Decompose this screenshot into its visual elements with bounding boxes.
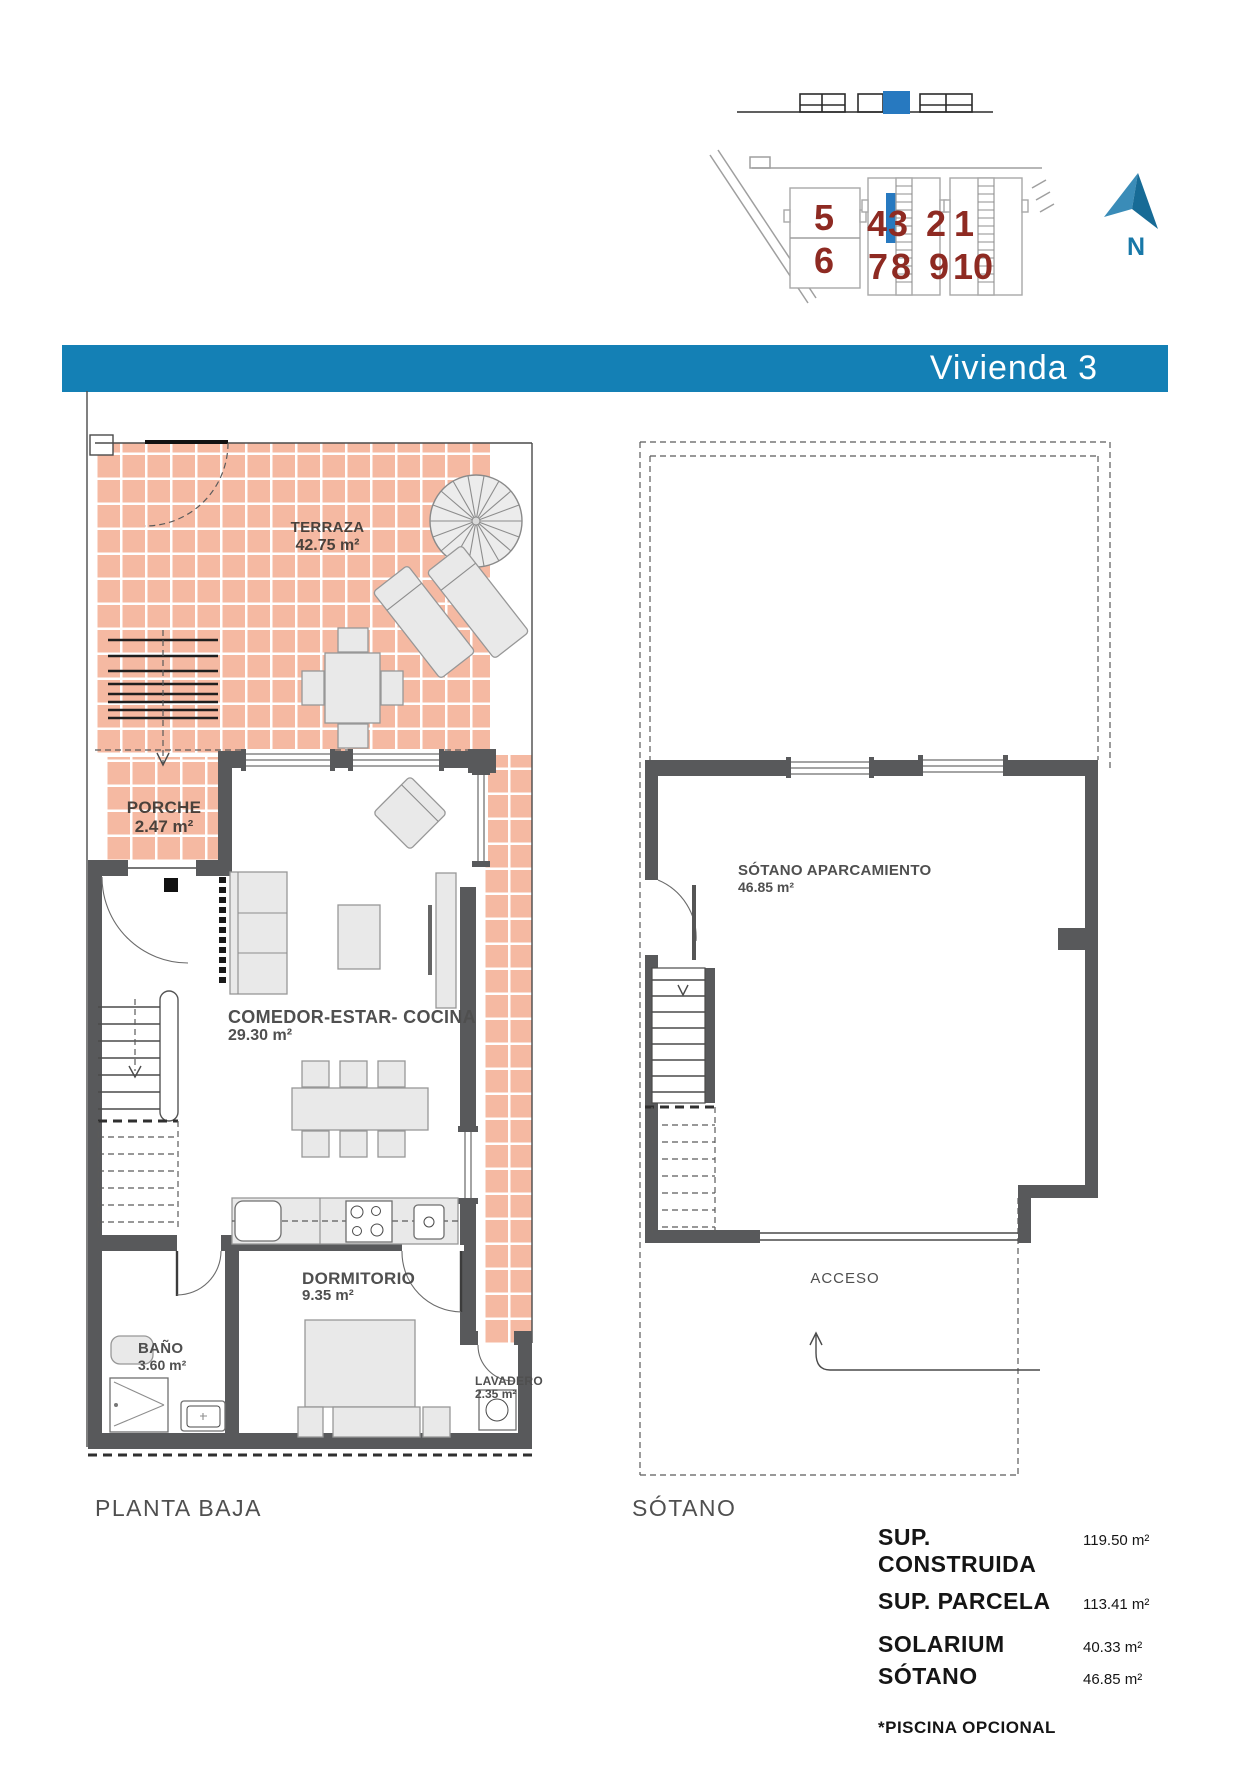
summary-label: SOLARIUM	[878, 1631, 1083, 1658]
sotano-drawing	[630, 385, 1115, 1485]
entry-door	[164, 878, 178, 892]
kitchen-counter	[232, 1198, 458, 1244]
garage-door-opening	[760, 1233, 1018, 1240]
summary-label: SUP. CONSTRUIDA	[878, 1524, 1083, 1578]
unit-number-4: 4	[867, 203, 887, 244]
caption-sotano: SÓTANO	[632, 1495, 736, 1522]
unit-number-8: 8	[891, 246, 911, 287]
interior-stairs	[98, 991, 178, 1229]
unit-number-10: 10	[953, 246, 993, 287]
page-title: Vivienda 3	[930, 349, 1098, 388]
unit-number-9: 9	[929, 246, 949, 287]
summary-row: SUP. CONSTRUIDA 119.50 m²	[878, 1524, 1208, 1578]
site-location-plan: 5 6 4 3 7 8 2 1 9 10	[640, 60, 1110, 310]
north-arrow: N	[1098, 165, 1168, 265]
spiral-stair	[430, 475, 522, 567]
sofa	[230, 872, 287, 994]
unit-number-7: 7	[868, 246, 888, 287]
unit-number-2: 2	[926, 203, 946, 244]
site-plan-drawing: 5 6 4 3 7 8 2 1 9 10	[640, 60, 1110, 310]
summary-row: SÓTANO 46.85 m²	[878, 1663, 1208, 1690]
summary-row: SOLARIUM 40.33 m²	[878, 1631, 1208, 1658]
parcel-boundary	[640, 442, 1110, 1475]
coffee-table	[338, 905, 380, 969]
bed	[298, 1320, 450, 1437]
unit-number-3: 3	[888, 203, 908, 244]
floorplan-sheet: 5 6 4 3 7 8 2 1 9 10 N Vivienda 3	[0, 0, 1241, 1778]
dining-table-set	[292, 1061, 428, 1157]
sink	[414, 1205, 444, 1239]
terrace-table-set	[302, 628, 403, 748]
room-label-lavadero: LAVADERO 2.35 m²	[475, 1375, 535, 1402]
summary-value: 40.33 m²	[1083, 1639, 1142, 1656]
surface-summary: SUP. CONSTRUIDA 119.50 m² SUP. PARCELA 1…	[878, 1524, 1208, 1738]
room-label-terraza: TERRAZA 42.75 m²	[255, 520, 400, 555]
radiator	[219, 877, 226, 983]
room-label-sotano-aparcamiento: SÓTANO APARCAMIENTO 46.85 m²	[738, 863, 931, 895]
tv-unit	[428, 873, 456, 1008]
summary-label: SUP. PARCELA	[878, 1588, 1083, 1615]
shower	[110, 1378, 168, 1432]
access-arrow	[810, 1333, 1040, 1370]
summary-value: 119.50 m²	[1083, 1532, 1149, 1549]
room-label-porche: PORCHE 2.47 m²	[108, 798, 220, 836]
unit-number-5: 5	[814, 197, 834, 238]
pool-note: *PISCINA OPCIONAL	[878, 1718, 1208, 1738]
strip-elevation	[737, 91, 993, 114]
north-label: N	[1127, 233, 1145, 261]
unit-number-1: 1	[954, 203, 974, 244]
terrace-stairs	[108, 630, 218, 765]
summary-label: SÓTANO	[878, 1663, 1083, 1690]
highlighted-unit-elevation	[883, 91, 910, 114]
basement-door	[658, 880, 696, 960]
planta-baja-plan: TERRAZA 42.75 m² PORCHE 2.47 m² COMEDOR-…	[80, 385, 535, 1460]
summary-value: 113.41 m²	[1083, 1596, 1149, 1613]
summary-value: 46.85 m²	[1083, 1671, 1142, 1688]
armchair	[373, 776, 447, 850]
access-label: ACCESO	[785, 1271, 905, 1288]
caption-planta-baja: PLANTA BAJA	[95, 1495, 262, 1522]
room-label-bano: BAÑO 3.60 m²	[138, 1341, 186, 1373]
stove	[346, 1201, 392, 1242]
bathroom-sink	[181, 1401, 225, 1431]
north-arrow-light	[1104, 173, 1138, 217]
sotano-plan: SÓTANO APARCAMIENTO 46.85 m² ACCESO	[630, 385, 1115, 1485]
unit-number-6: 6	[814, 240, 834, 281]
room-label-dormitorio: DORMITORIO 9.35 m²	[302, 1269, 415, 1305]
room-label-comedor: COMEDOR-ESTAR- COCINA 29.30 m²	[228, 1007, 476, 1045]
summary-row: SUP. PARCELA 113.41 m²	[878, 1588, 1208, 1615]
